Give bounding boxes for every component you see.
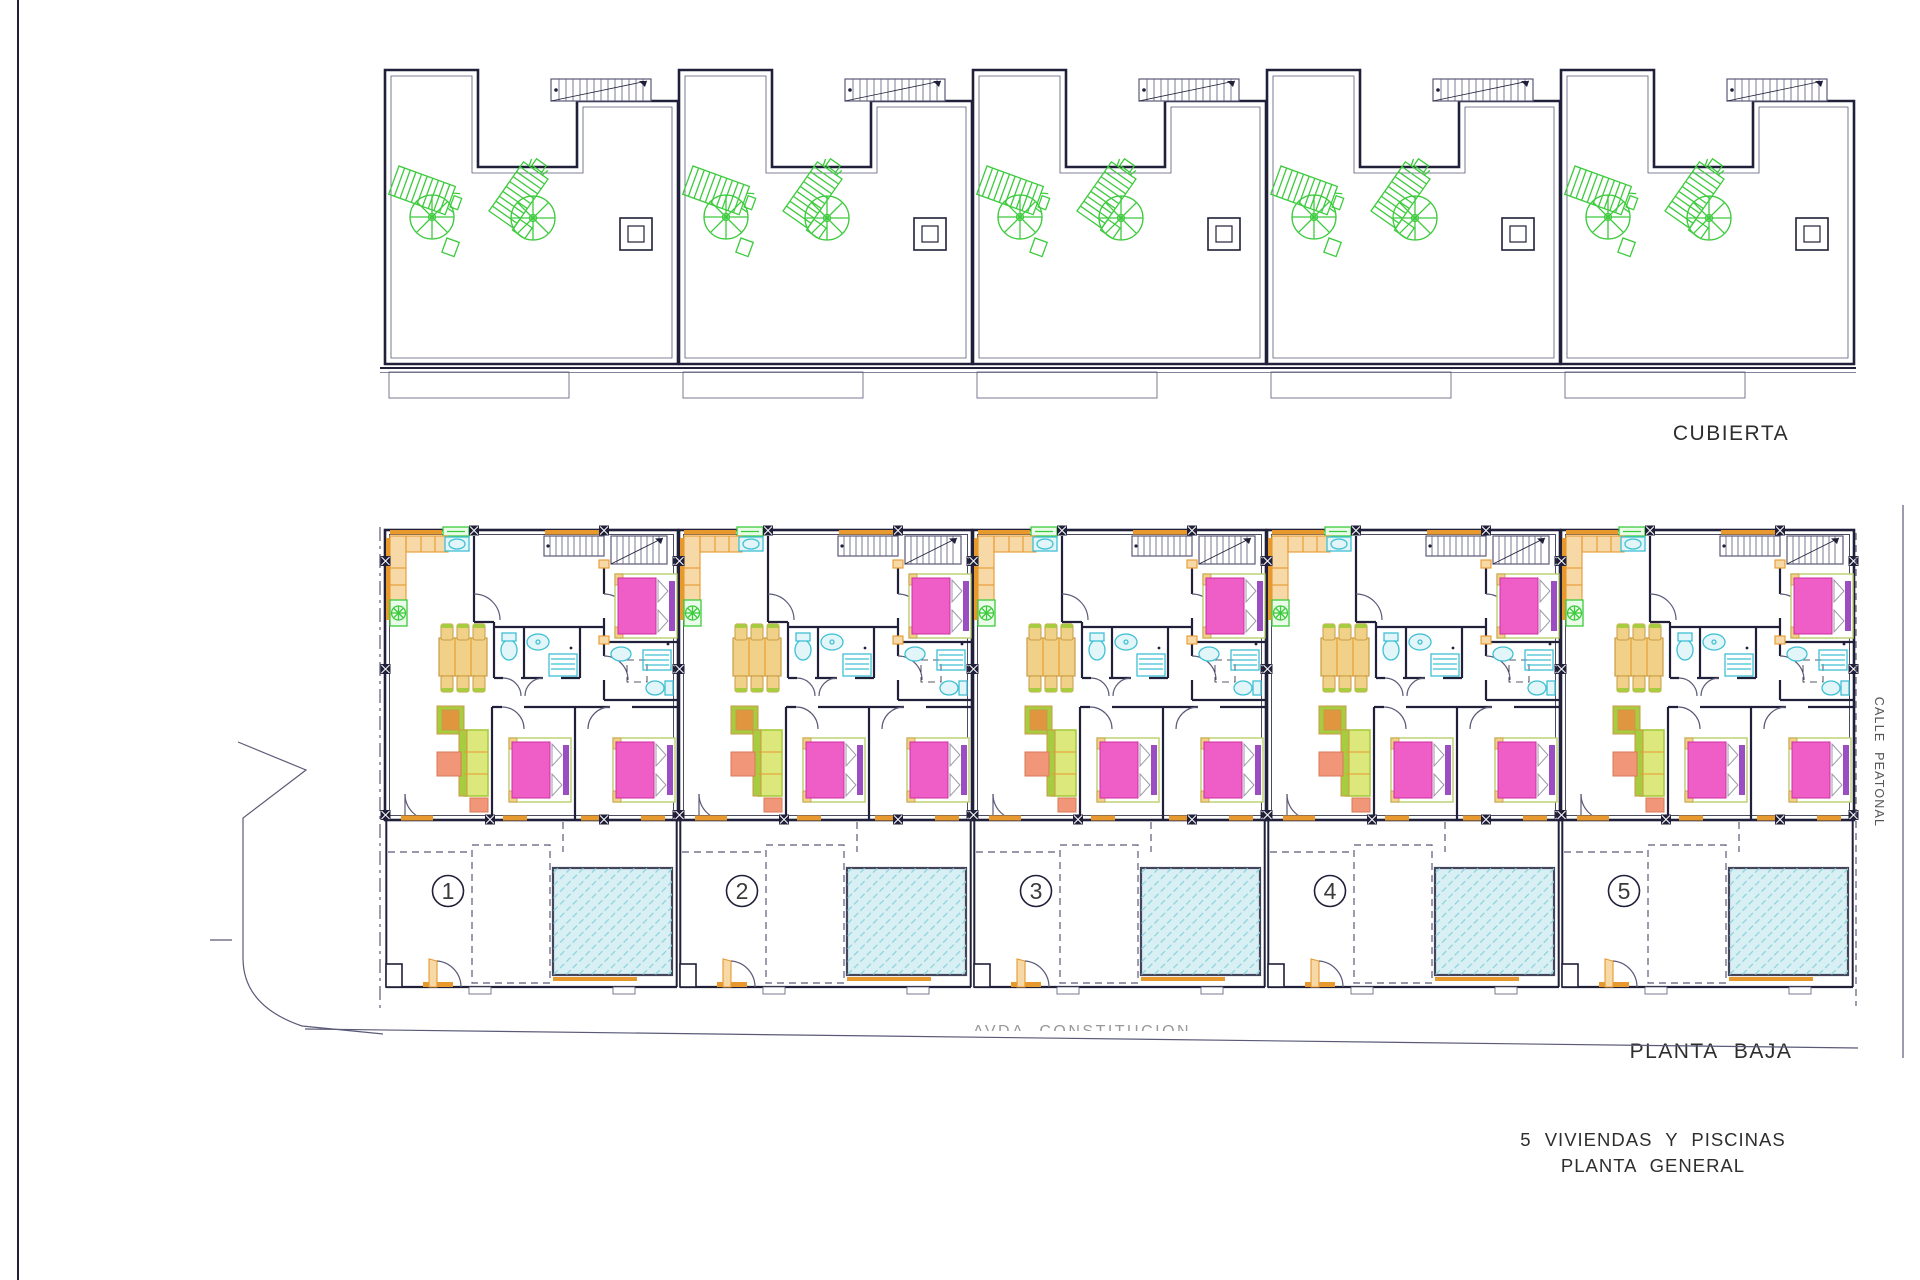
street-edge-south xyxy=(305,1029,1858,1048)
project-title-line-1: 5 VIVIENDAS Y PISCINAS xyxy=(1520,1129,1785,1150)
roof-unit-4 xyxy=(1267,70,1560,398)
house-unit-5 xyxy=(1557,526,1859,995)
unit-number-badge-4: 4 xyxy=(1315,876,1346,907)
cubierta-label: CUBIERTA xyxy=(1673,422,1789,445)
roof-unit-2 xyxy=(679,70,972,398)
house-unit-2 xyxy=(675,526,977,995)
planta-baja-section: 1 2 3 4 5 PLANTA BAJA xyxy=(381,526,1859,1064)
unit-number-badge-1: 1 xyxy=(433,876,464,907)
unit-number-badge-2: 2 xyxy=(727,876,758,907)
drawing-sheet: CUBIERTA 1 2 3 4 5 PLANTA BAJA xyxy=(0,0,1920,1280)
svg-text:2: 2 xyxy=(736,878,749,904)
site-boundary-west xyxy=(238,742,383,1034)
project-title-line-2: PLANTA GENERAL xyxy=(1561,1155,1745,1176)
architectural-site-plan: CUBIERTA 1 2 3 4 5 PLANTA BAJA xyxy=(0,0,1920,1280)
svg-text:CALLE PEATONAL: CALLE PEATONAL xyxy=(1872,697,1886,827)
svg-text:1: 1 xyxy=(442,878,455,904)
sheet-title-block: 5 VIVIENDAS Y PISCINAS PLANTA GENERAL xyxy=(1520,1129,1785,1176)
cubierta-roof-plan-section: CUBIERTA xyxy=(380,70,1856,445)
roof-unit-5 xyxy=(1561,70,1854,398)
house-unit-4 xyxy=(1263,526,1565,995)
planta-baja-label: PLANTA BAJA xyxy=(1630,1040,1793,1063)
house-unit-3 xyxy=(969,526,1271,995)
house-unit-1 xyxy=(381,526,683,995)
unit-number-badge-3: 3 xyxy=(1021,876,1052,907)
street-label-east: CALLE PEATONAL xyxy=(1872,697,1886,827)
unit-number-badge-5: 5 xyxy=(1609,876,1640,907)
svg-text:4: 4 xyxy=(1324,878,1337,904)
svg-text:3: 3 xyxy=(1030,878,1043,904)
roof-unit-1 xyxy=(385,70,678,398)
svg-text:5: 5 xyxy=(1618,878,1631,904)
roof-unit-3 xyxy=(973,70,1266,398)
